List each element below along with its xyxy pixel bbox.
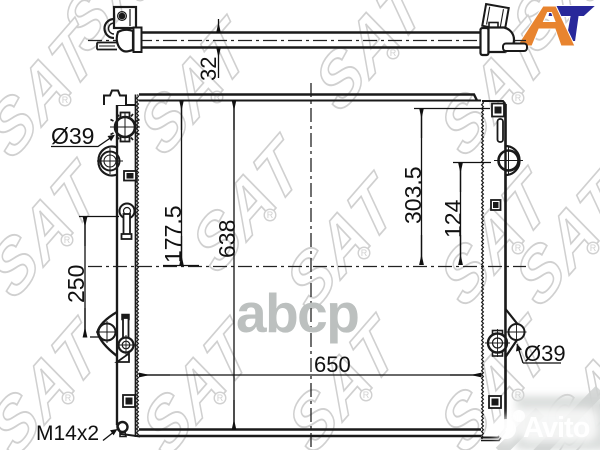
- svg-text:Avito: Avito: [523, 412, 590, 444]
- svg-text:Ø39: Ø39: [51, 123, 94, 149]
- svg-text:32: 32: [196, 57, 221, 81]
- svg-text:M14x2: M14x2: [36, 422, 99, 445]
- svg-text:177.5: 177.5: [160, 205, 186, 263]
- svg-text:638: 638: [214, 220, 240, 258]
- svg-text:303.5: 303.5: [400, 166, 426, 224]
- svg-text:124: 124: [440, 199, 466, 238]
- svg-text:abcp: abcp: [236, 282, 358, 344]
- svg-text:250: 250: [63, 265, 89, 303]
- svg-text:Ø39: Ø39: [524, 341, 566, 366]
- svg-text:650: 650: [314, 352, 351, 377]
